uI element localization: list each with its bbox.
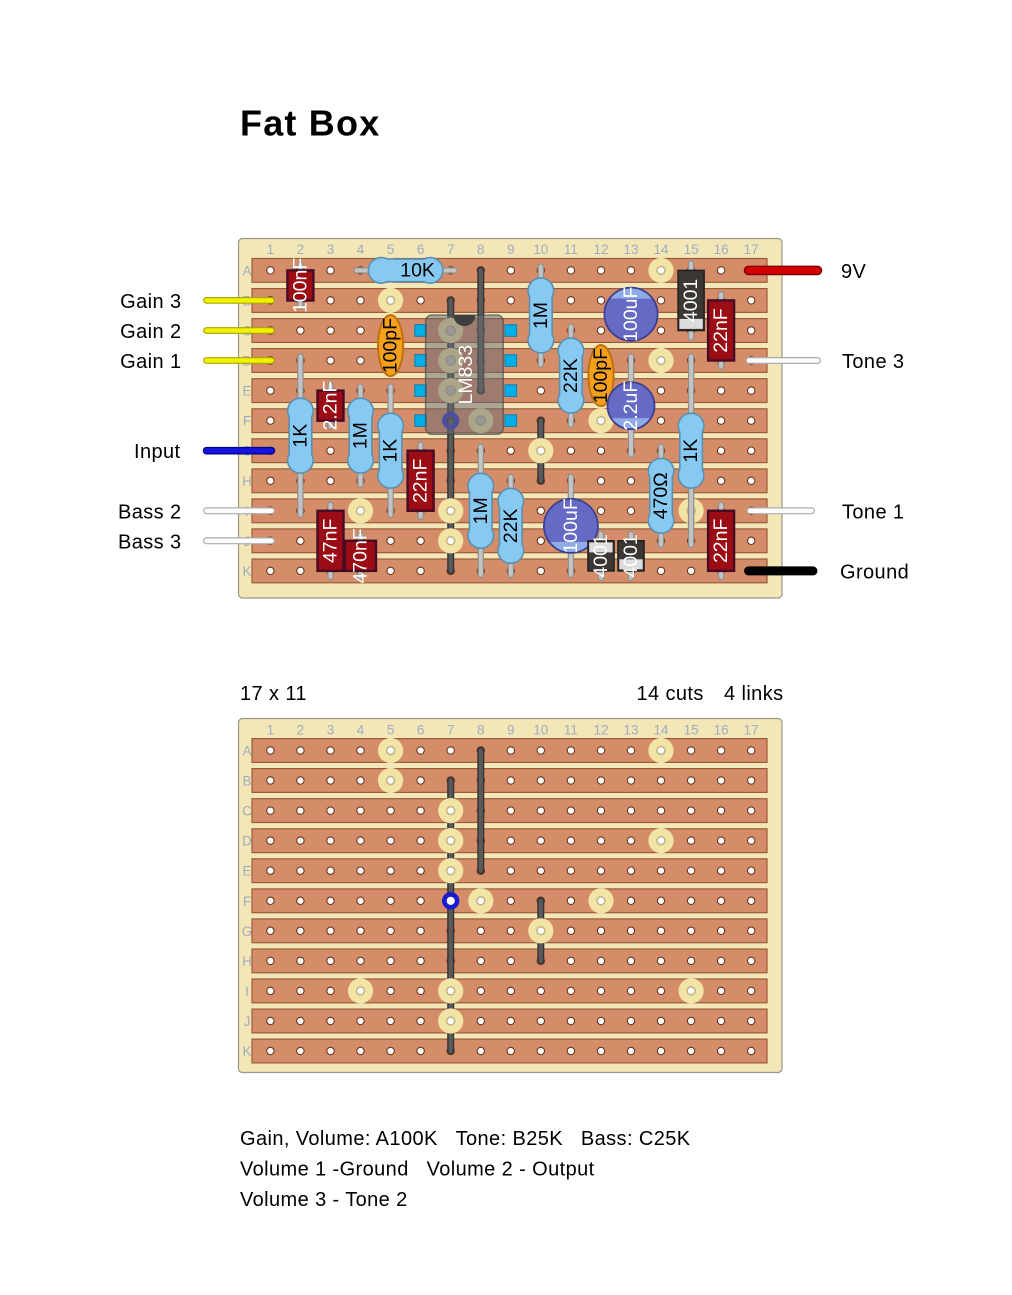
svg-text:Bass 2: Bass 2 bbox=[118, 501, 182, 523]
svg-text:6: 6 bbox=[417, 242, 425, 257]
svg-text:1: 1 bbox=[267, 723, 275, 738]
svg-text:22nF: 22nF bbox=[710, 308, 732, 353]
svg-text:2.2uF: 2.2uF bbox=[620, 381, 642, 431]
svg-text:12: 12 bbox=[593, 723, 608, 738]
svg-text:C: C bbox=[242, 804, 252, 819]
svg-text:Volume 1 -Ground Volume 2 -: Volume 1 -Ground Volume 2 - Output bbox=[240, 1159, 595, 1181]
svg-text:8: 8 bbox=[477, 723, 485, 738]
svg-text:Gain, Volume: A100K Tone: B2: Gain, Volume: A100K Tone: B25K Bass: C25… bbox=[240, 1128, 691, 1150]
svg-text:12: 12 bbox=[593, 242, 608, 257]
svg-text:17: 17 bbox=[744, 242, 759, 257]
svg-text:7: 7 bbox=[447, 242, 455, 257]
svg-text:4001: 4001 bbox=[590, 534, 612, 577]
svg-text:B: B bbox=[242, 774, 251, 789]
svg-text:100pF: 100pF bbox=[590, 348, 612, 403]
svg-text:16: 16 bbox=[714, 242, 729, 257]
svg-text:10K: 10K bbox=[400, 259, 435, 281]
svg-text:13: 13 bbox=[623, 723, 638, 738]
svg-text:8: 8 bbox=[477, 242, 485, 257]
svg-text:E: E bbox=[242, 864, 251, 879]
svg-text:6: 6 bbox=[417, 723, 425, 738]
svg-text:D: D bbox=[242, 834, 252, 849]
svg-text:Fat Box: Fat Box bbox=[240, 103, 380, 144]
svg-text:2.2nF: 2.2nF bbox=[320, 381, 342, 431]
svg-text:2: 2 bbox=[297, 242, 305, 257]
svg-text:22K: 22K bbox=[560, 358, 582, 393]
svg-text:Gain 1: Gain 1 bbox=[120, 351, 181, 373]
svg-text:I: I bbox=[245, 984, 249, 999]
svg-text:Ground: Ground bbox=[840, 561, 909, 583]
svg-text:15: 15 bbox=[684, 242, 699, 257]
svg-text:F: F bbox=[243, 414, 251, 429]
svg-text:22nF: 22nF bbox=[410, 458, 432, 503]
svg-text:4 links: 4 links bbox=[724, 683, 784, 705]
svg-text:22K: 22K bbox=[500, 508, 522, 543]
svg-text:J: J bbox=[244, 1014, 251, 1029]
svg-text:9: 9 bbox=[507, 723, 515, 738]
svg-text:LM833: LM833 bbox=[455, 345, 477, 405]
svg-text:470nF: 470nF bbox=[350, 528, 372, 583]
svg-text:F: F bbox=[243, 894, 251, 909]
svg-text:H: H bbox=[242, 474, 252, 489]
svg-text:47nF: 47nF bbox=[320, 518, 342, 563]
svg-text:100uF: 100uF bbox=[620, 286, 642, 341]
svg-text:G: G bbox=[242, 924, 253, 939]
svg-text:1M: 1M bbox=[350, 422, 372, 449]
svg-text:17 x 11: 17 x 11 bbox=[240, 683, 307, 705]
svg-text:E: E bbox=[242, 384, 251, 399]
svg-text:10: 10 bbox=[533, 723, 548, 738]
svg-text:4: 4 bbox=[357, 242, 365, 257]
svg-text:H: H bbox=[242, 954, 252, 969]
svg-text:100pF: 100pF bbox=[380, 318, 402, 373]
svg-text:10: 10 bbox=[533, 242, 548, 257]
svg-text:Volume 3 - Tone 2: Volume 3 - Tone 2 bbox=[240, 1189, 408, 1211]
svg-text:Gain 2: Gain 2 bbox=[120, 321, 181, 343]
svg-text:14: 14 bbox=[653, 723, 669, 738]
svg-text:4001: 4001 bbox=[620, 534, 642, 577]
svg-text:3: 3 bbox=[327, 242, 335, 257]
svg-text:K: K bbox=[242, 1044, 251, 1059]
svg-text:470Ω: 470Ω bbox=[650, 472, 672, 519]
svg-text:5: 5 bbox=[387, 242, 395, 257]
svg-text:1K: 1K bbox=[680, 439, 702, 463]
svg-text:4: 4 bbox=[357, 723, 365, 738]
svg-text:100nF: 100nF bbox=[289, 258, 311, 313]
svg-text:9V: 9V bbox=[841, 261, 867, 283]
svg-text:9: 9 bbox=[507, 242, 515, 257]
svg-text:15: 15 bbox=[684, 723, 699, 738]
svg-text:A: A bbox=[242, 744, 251, 759]
svg-text:7: 7 bbox=[447, 723, 455, 738]
svg-text:K: K bbox=[242, 564, 251, 579]
svg-text:13: 13 bbox=[623, 242, 638, 257]
svg-text:11: 11 bbox=[564, 242, 578, 257]
svg-text:14 cuts: 14 cuts bbox=[637, 683, 704, 705]
svg-text:22nF: 22nF bbox=[710, 518, 732, 563]
svg-text:11: 11 bbox=[564, 723, 578, 738]
svg-text:4001: 4001 bbox=[680, 279, 702, 322]
svg-text:100uF: 100uF bbox=[560, 498, 582, 553]
svg-text:Tone 1: Tone 1 bbox=[842, 501, 904, 523]
svg-text:Gain 3: Gain 3 bbox=[120, 291, 181, 313]
svg-text:1M: 1M bbox=[470, 497, 492, 524]
svg-text:14: 14 bbox=[653, 242, 669, 257]
svg-text:Bass 3: Bass 3 bbox=[118, 531, 182, 553]
svg-text:3: 3 bbox=[327, 723, 335, 738]
svg-text:17: 17 bbox=[744, 723, 759, 738]
svg-text:5: 5 bbox=[387, 723, 395, 738]
svg-text:2: 2 bbox=[297, 723, 305, 738]
svg-text:16: 16 bbox=[714, 723, 729, 738]
svg-text:Input: Input bbox=[134, 441, 181, 463]
svg-text:1: 1 bbox=[267, 242, 275, 257]
svg-text:1K: 1K bbox=[289, 424, 311, 448]
svg-text:Tone 3: Tone 3 bbox=[842, 351, 904, 373]
svg-text:A: A bbox=[242, 263, 251, 278]
svg-text:1M: 1M bbox=[530, 302, 552, 329]
svg-text:1K: 1K bbox=[380, 439, 402, 463]
